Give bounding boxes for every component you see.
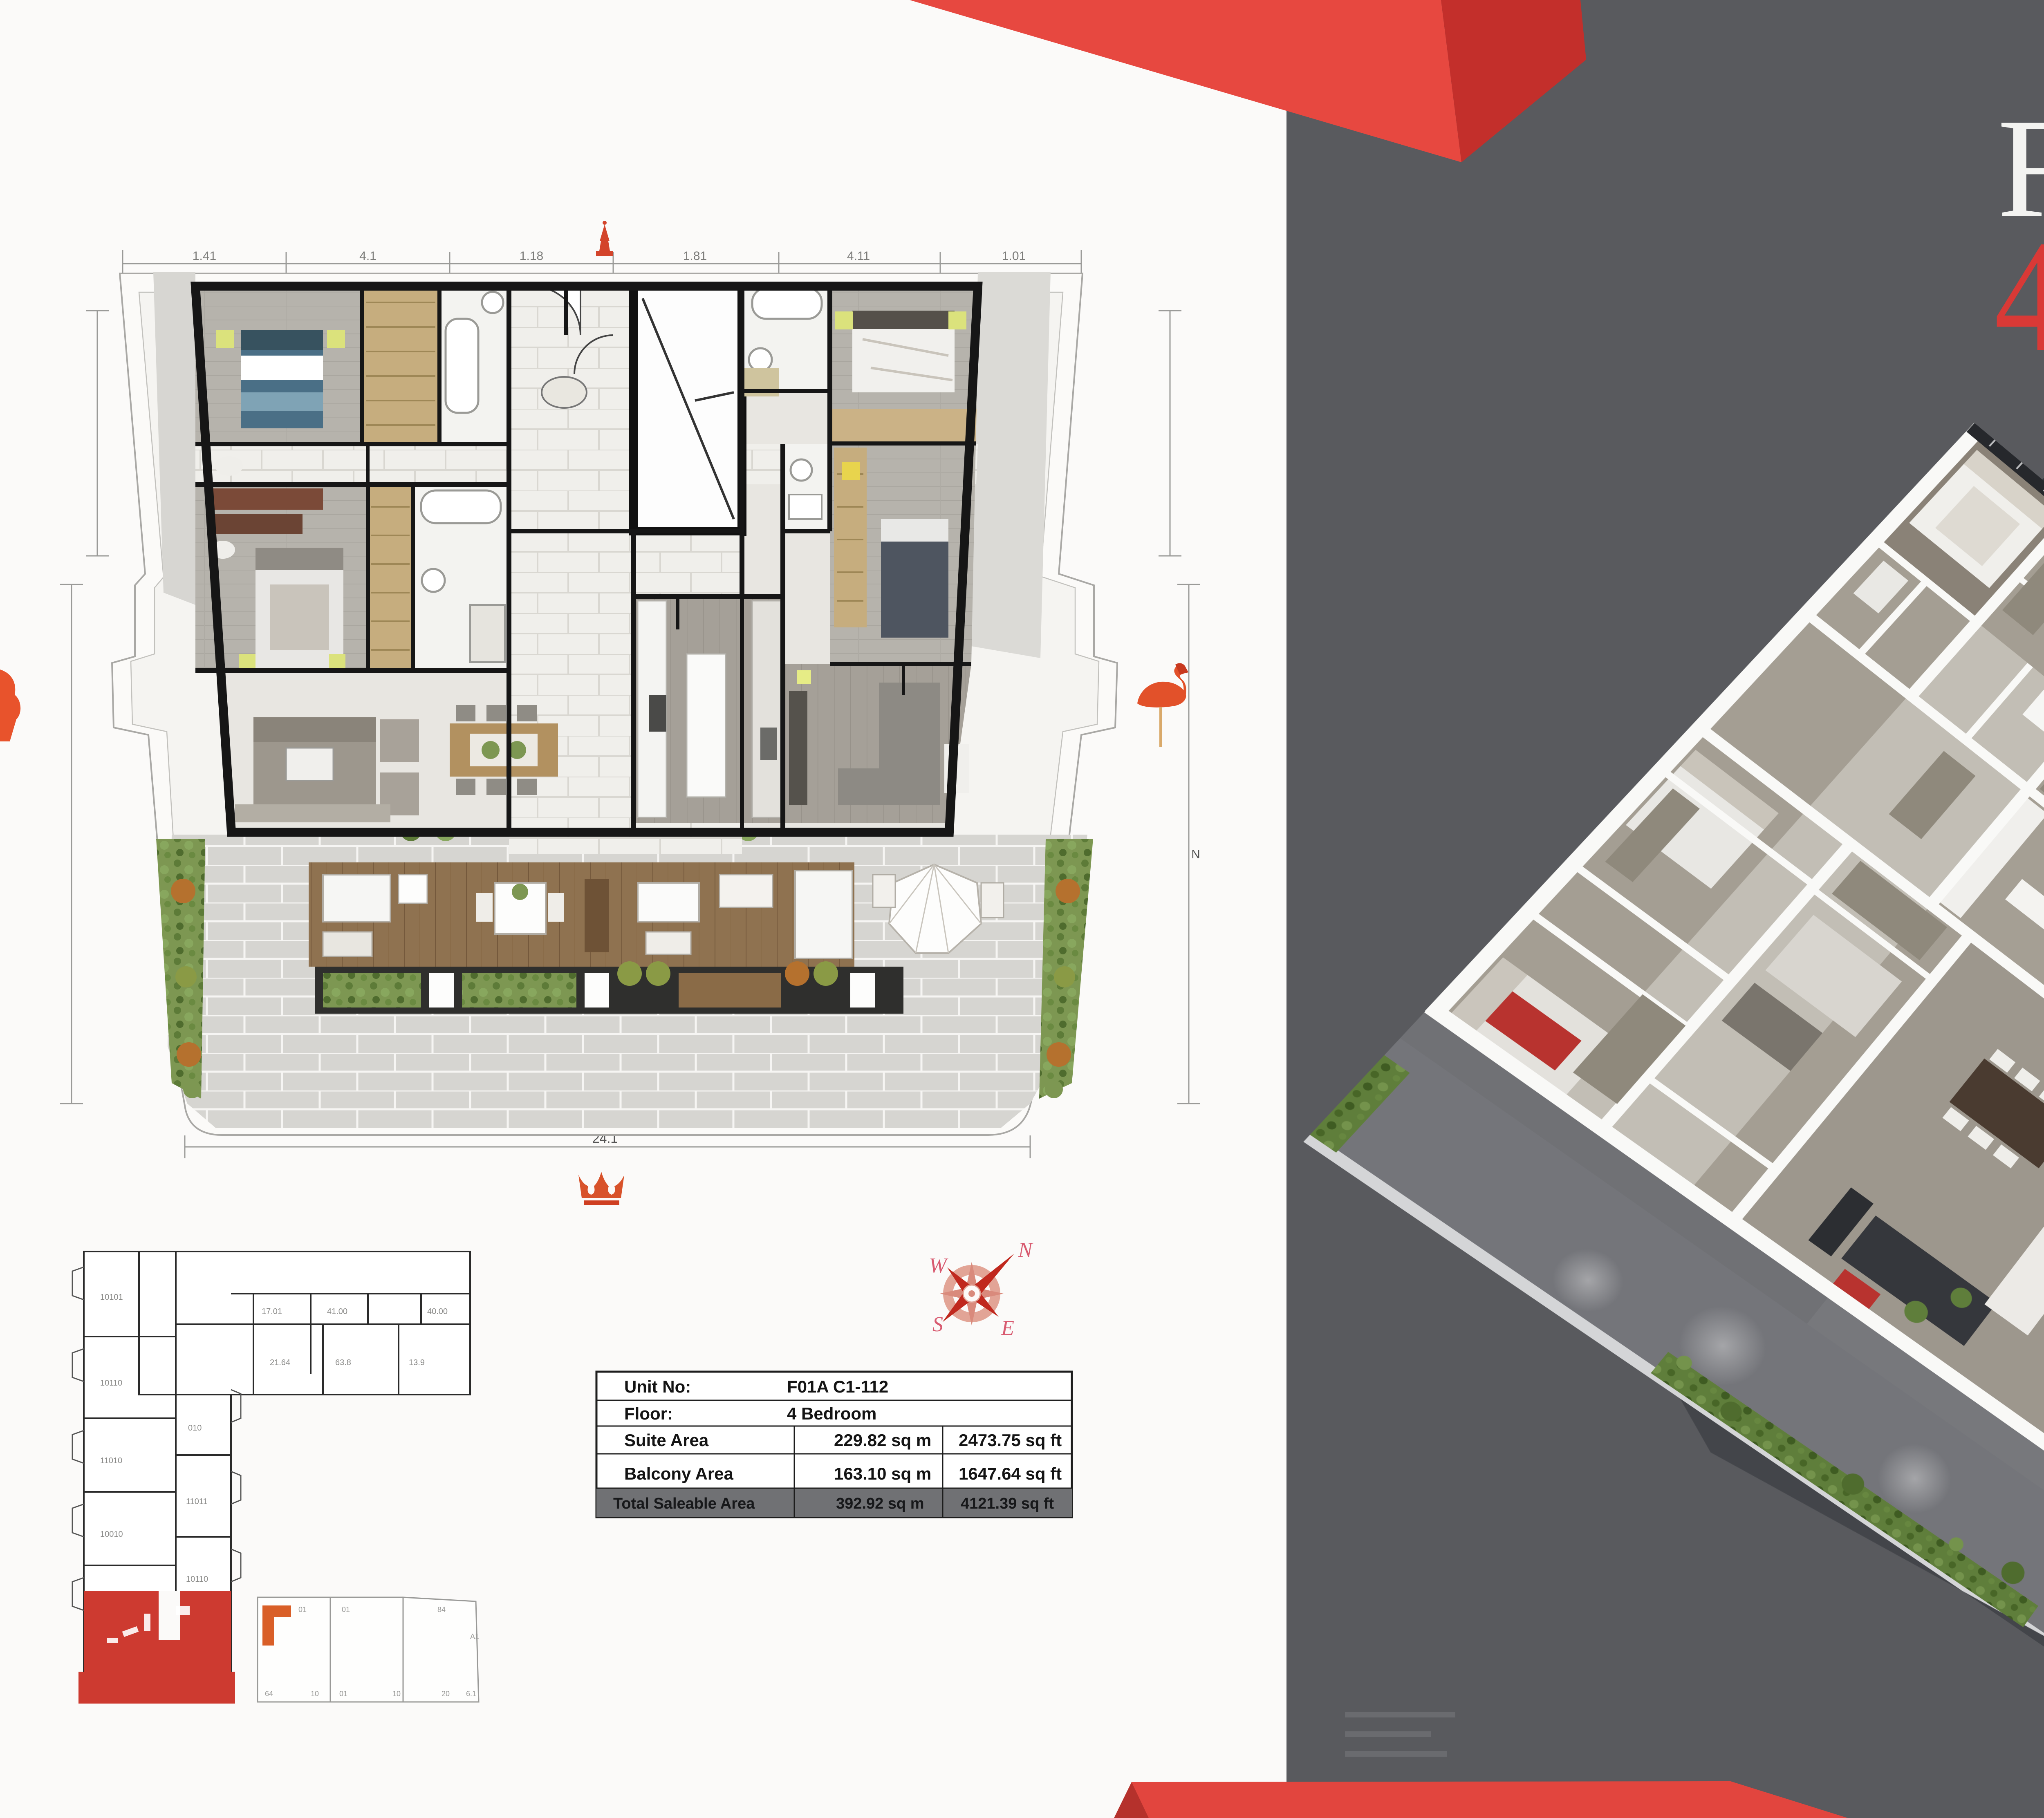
svg-text:Total Saleable Area: Total Saleable Area: [613, 1495, 755, 1512]
svg-text:163.10 sq m: 163.10 sq m: [834, 1464, 931, 1483]
svg-text:229.82 sq m: 229.82 sq m: [834, 1431, 931, 1450]
svg-text:10: 10: [392, 1690, 401, 1698]
svg-text:1.18: 1.18: [520, 249, 543, 263]
svg-text:392.92 sq m: 392.92 sq m: [836, 1495, 924, 1512]
svg-text:010: 010: [188, 1424, 202, 1433]
svg-text:01: 01: [342, 1605, 350, 1614]
svg-text:1.41: 1.41: [193, 249, 216, 263]
svg-text:11011: 11011: [186, 1497, 208, 1506]
svg-text:41.00: 41.00: [327, 1307, 347, 1316]
svg-text:10101: 10101: [100, 1293, 123, 1302]
svg-text:Unit No:: Unit No:: [624, 1377, 691, 1396]
svg-text:4 Bedroom: 4 Bedroom: [1994, 207, 2044, 385]
svg-text:10010: 10010: [100, 1530, 123, 1539]
svg-text:Balcony Area: Balcony Area: [624, 1464, 734, 1483]
svg-text:64: 64: [265, 1690, 273, 1698]
svg-text:E: E: [1001, 1316, 1014, 1340]
svg-text:01: 01: [339, 1690, 347, 1698]
svg-text:S: S: [932, 1313, 943, 1336]
svg-text:17.01: 17.01: [262, 1307, 282, 1316]
svg-text:11010: 11010: [100, 1456, 122, 1465]
svg-text:01: 01: [298, 1605, 307, 1614]
svg-text:10: 10: [311, 1690, 319, 1698]
svg-text:20: 20: [442, 1690, 450, 1698]
svg-text:1647.64 sq ft: 1647.64 sq ft: [959, 1464, 1062, 1483]
svg-text:4121.39 sq ft: 4121.39 sq ft: [961, 1495, 1054, 1512]
svg-text:2473.75 sq ft: 2473.75 sq ft: [959, 1431, 1062, 1450]
svg-text:4 Bedroom: 4 Bedroom: [787, 1404, 876, 1423]
svg-text:21.64: 21.64: [270, 1358, 290, 1367]
svg-text:F01A C1-112: F01A C1-112: [787, 1377, 888, 1396]
svg-text:Suite Area: Suite Area: [624, 1431, 709, 1450]
svg-text:10110: 10110: [186, 1575, 208, 1584]
svg-text:84: 84: [437, 1605, 446, 1614]
svg-text:10110: 10110: [100, 1379, 122, 1388]
svg-text:4.1: 4.1: [359, 249, 377, 263]
svg-text:13.9: 13.9: [409, 1358, 425, 1367]
svg-text:W: W: [929, 1254, 948, 1277]
svg-text:40.00: 40.00: [427, 1307, 448, 1316]
svg-text:A1: A1: [470, 1632, 479, 1641]
svg-text:Floor:: Floor:: [624, 1404, 673, 1423]
svg-text:N: N: [1191, 848, 1200, 861]
svg-text:N: N: [1018, 1238, 1034, 1262]
svg-text:63.8: 63.8: [335, 1358, 351, 1367]
svg-text:6.1: 6.1: [466, 1690, 476, 1698]
svg-text:1.01: 1.01: [1002, 249, 1026, 263]
svg-text:1.81: 1.81: [683, 249, 707, 263]
svg-text:4.11: 4.11: [847, 249, 870, 263]
